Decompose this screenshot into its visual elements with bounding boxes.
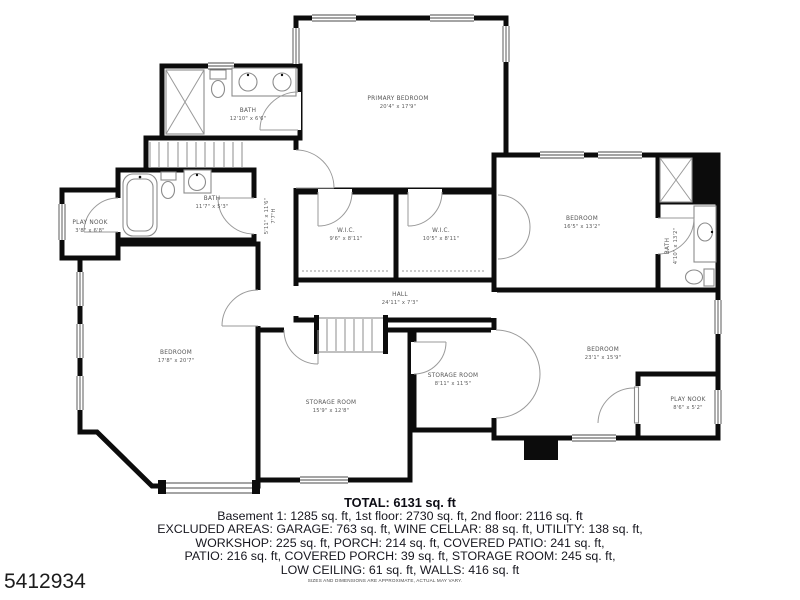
label-bath-upper: BATH xyxy=(240,108,256,114)
window xyxy=(300,477,348,484)
label-wic-1: W.I.C. xyxy=(337,228,355,234)
window xyxy=(598,152,642,159)
window xyxy=(715,390,722,424)
listing-id: 5412934 xyxy=(4,570,86,594)
window xyxy=(430,15,474,22)
label-primary-bedroom: PRIMARY BEDROOM xyxy=(367,96,428,102)
svg-text:3'8" x 6'8": 3'8" x 6'8" xyxy=(75,228,104,234)
svg-text:20'4" x 17'9": 20'4" x 17'9" xyxy=(380,104,416,110)
svg-text:24'11" x 7'3": 24'11" x 7'3" xyxy=(382,300,418,306)
summary-line-floors: Basement 1: 1285 sq. ft, 1st floor: 2730… xyxy=(0,510,800,524)
svg-text:23'1" x 15'9": 23'1" x 15'9" xyxy=(585,355,621,361)
svg-text:16'5" x 13'2": 16'5" x 13'2" xyxy=(564,224,600,230)
svg-text:11'7" x 5'3": 11'7" x 5'3" xyxy=(196,204,229,210)
svg-text:4'10" x 13'2": 4'10" x 13'2" xyxy=(673,228,679,264)
wall-block-shower xyxy=(692,155,718,203)
window xyxy=(540,152,584,159)
window xyxy=(77,272,84,306)
window xyxy=(572,435,616,442)
summary-line-workshop: WORKSHOP: 225 sq. ft, PORCH: 214 sq. ft,… xyxy=(0,537,800,551)
room-bedroom-left xyxy=(80,244,258,486)
vanity-sink xyxy=(694,206,716,262)
sink xyxy=(184,170,211,193)
svg-text:15'9" x 12'8": 15'9" x 12'8" xyxy=(313,408,349,414)
floor-plan-page: PRIMARY BEDROOM 20'4" x 17'9" BATH 12'10… xyxy=(0,0,800,600)
wall-block-step xyxy=(524,436,558,460)
window xyxy=(715,300,722,334)
room-bedroom-right xyxy=(494,155,658,290)
svg-text:8'6" x 5'2": 8'6" x 5'2" xyxy=(673,405,702,411)
window xyxy=(77,324,84,358)
window xyxy=(77,376,84,410)
label-hall: HALL xyxy=(392,292,408,298)
floor-plan-svg: PRIMARY BEDROOM 20'4" x 17'9" BATH 12'10… xyxy=(0,0,800,494)
label-play-nook-right: PLAY NOOK xyxy=(670,397,705,403)
label-play-nook-left: PLAY NOOK xyxy=(72,220,107,226)
window xyxy=(59,204,66,240)
toilet xyxy=(210,70,226,98)
window xyxy=(293,28,300,64)
label-bedroom-left: BEDROOM xyxy=(160,350,192,356)
vanity-sinks xyxy=(232,68,296,96)
summary-line-excluded: EXCLUDED AREAS: GARAGE: 763 sq. ft, WINE… xyxy=(0,523,800,537)
summary-line-walls: LOW CEILING: 61 sq. ft, WALLS: 416 sq. f… xyxy=(0,564,800,578)
label-stair-note: 5'11" x 11'6" xyxy=(264,198,270,234)
label-bedroom-bottom-right: BEDROOM xyxy=(587,347,619,353)
summary-line-patio: PATIO: 216 sq. ft, COVERED PORCH: 39 sq.… xyxy=(0,550,800,564)
bathtub xyxy=(123,174,157,236)
shower xyxy=(660,158,692,202)
toilet xyxy=(161,172,176,199)
room-storage-2 xyxy=(414,330,494,430)
staircase-upper xyxy=(150,142,242,168)
label-storage-2: STORAGE ROOM xyxy=(428,373,479,379)
label-bedroom-right: BEDROOM xyxy=(566,216,598,222)
walls xyxy=(62,18,718,486)
bay-window xyxy=(158,480,260,494)
svg-text:17'8" x 20'7": 17'8" x 20'7" xyxy=(158,358,194,364)
disclaimer-text: SIZES AND DIMENSIONS ARE APPROXIMATE, AC… xyxy=(0,578,770,583)
svg-text:12'10" x 6'6": 12'10" x 6'6" xyxy=(230,116,266,122)
svg-text:10'5" x 8'11": 10'5" x 8'11" xyxy=(423,236,459,242)
window xyxy=(312,15,356,22)
summary-total: TOTAL: 6131 sq. ft xyxy=(0,496,800,510)
svg-text:9'6" x 8'11": 9'6" x 8'11" xyxy=(330,236,363,242)
label-bath-2: BATH xyxy=(204,196,220,202)
staircase-lower xyxy=(314,314,388,354)
svg-text:7'7"H: 7'7"H xyxy=(271,208,277,223)
window xyxy=(503,26,510,62)
window xyxy=(208,63,234,70)
label-storage-1: STORAGE ROOM xyxy=(306,400,357,406)
stair-well-wall xyxy=(146,138,162,172)
area-summary: TOTAL: 6131 sq. ft Basement 1: 1285 sq. … xyxy=(0,496,800,578)
shower xyxy=(166,70,204,134)
svg-text:8'11" x 11'5": 8'11" x 11'5" xyxy=(435,381,471,387)
label-bath-right: BATH xyxy=(665,238,671,254)
label-wic-2: W.I.C. xyxy=(432,228,450,234)
